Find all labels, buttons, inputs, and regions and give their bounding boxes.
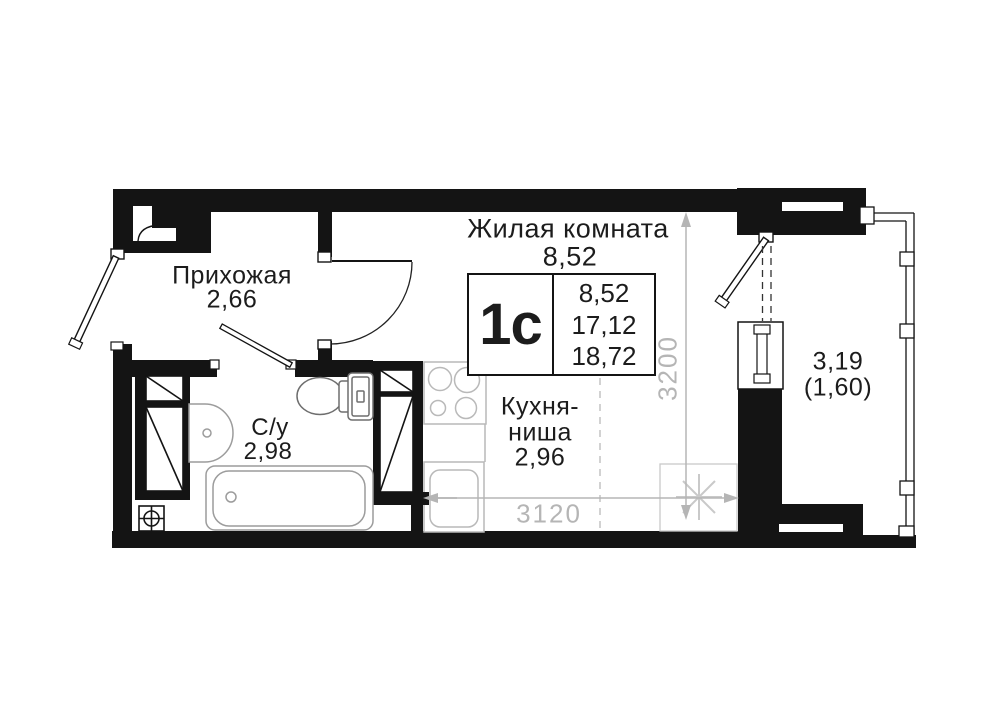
dimension-3200-label: 3200 [653,335,684,401]
interior-door [318,252,412,349]
ventilation-shaft-left [146,376,183,491]
balcony-window [738,322,783,389]
bathtub [206,466,373,530]
kitchen-area: 2,96 [515,444,566,473]
entry-niche [133,206,176,241]
apartment-stamp: 1с 8,52 17,12 18,72 [467,273,656,376]
apartment-areas: 8,52 17,12 18,72 [554,275,654,374]
balcony-area-coefficient: (1,60) [804,374,872,403]
hallway-area: 2,66 [207,286,258,315]
living-room-area: 8,52 [543,242,598,273]
apartment-type: 1с [469,275,554,374]
balcony-area: 3,19 [813,348,864,377]
stamp-area-without-balcony: 17,12 [571,312,636,338]
entry-door [69,249,124,350]
kitchen-label-line1: Кухня- [501,393,579,422]
stamp-living-area: 8,52 [579,280,630,306]
bathroom-door [210,324,296,369]
floor-drain [139,506,164,531]
bathroom-area: 2,98 [244,438,293,466]
dimension-3120-label: 3120 [516,499,582,530]
living-room-label: Жилая комната [467,214,669,245]
floor-plan: Жилая комната 8,52 Прихожая 2,66 С/у 2,9… [0,0,1000,707]
bathroom-sink [189,404,233,462]
balcony-glazing [860,207,914,538]
stamp-total-area: 18,72 [571,343,636,369]
balcony-door [715,232,773,321]
ventilation-shaft-right [380,370,413,492]
toilet [297,373,373,420]
